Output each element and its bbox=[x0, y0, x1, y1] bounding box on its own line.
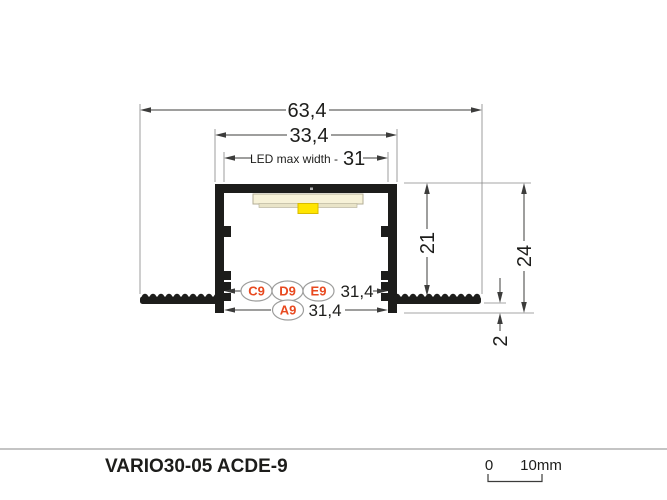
scale-zero-label: 0 bbox=[485, 457, 493, 474]
profile-flange-right bbox=[394, 294, 481, 304]
dim-text-bottom-spacing: 31,4 bbox=[308, 301, 341, 320]
badge-label-c9: C9 bbox=[248, 284, 265, 299]
led-diffuser-strip bbox=[253, 194, 363, 204]
led-assembly bbox=[253, 194, 363, 214]
profile-top-wall bbox=[215, 184, 397, 193]
dim-text-led-max-width-label: LED max width - bbox=[250, 152, 338, 166]
dim-text-total-width: 63,4 bbox=[288, 100, 327, 122]
scale-end-label: 10mm bbox=[520, 457, 562, 474]
profile-flange-left bbox=[140, 294, 220, 304]
footer: VARIO30-05 ACDE-9 0 10mm bbox=[0, 449, 667, 482]
dim-text-inner-depth: 21 bbox=[417, 232, 439, 254]
badge-label-e9: E9 bbox=[311, 284, 327, 299]
profile-drawing-canvas: 63,4 33,4 LED max width - 31 21 24 2 31,… bbox=[0, 0, 667, 500]
led-emitter bbox=[298, 204, 318, 214]
product-title: VARIO30-05 ACDE-9 bbox=[105, 456, 288, 477]
scale-bar: 0 10mm bbox=[485, 457, 562, 482]
profile-left-wall bbox=[215, 184, 224, 313]
profile-center-mark bbox=[310, 188, 313, 191]
scale-bracket bbox=[488, 474, 542, 482]
technical-drawing-page: 63,4 33,4 LED max width - 31 21 24 2 31,… bbox=[0, 0, 667, 500]
dim-text-total-height: 24 bbox=[514, 245, 536, 267]
badge-label-d9: D9 bbox=[279, 284, 296, 299]
dim-text-led-max-width-value: 31 bbox=[343, 148, 365, 170]
dim-text-outer-width: 33,4 bbox=[290, 125, 329, 147]
dim-text-flange-thickness: 2 bbox=[490, 335, 512, 346]
dim-text-top-spacing: 31,4 bbox=[340, 282, 373, 301]
badge-label-a9: A9 bbox=[280, 303, 297, 318]
profile-right-wall bbox=[388, 184, 397, 313]
